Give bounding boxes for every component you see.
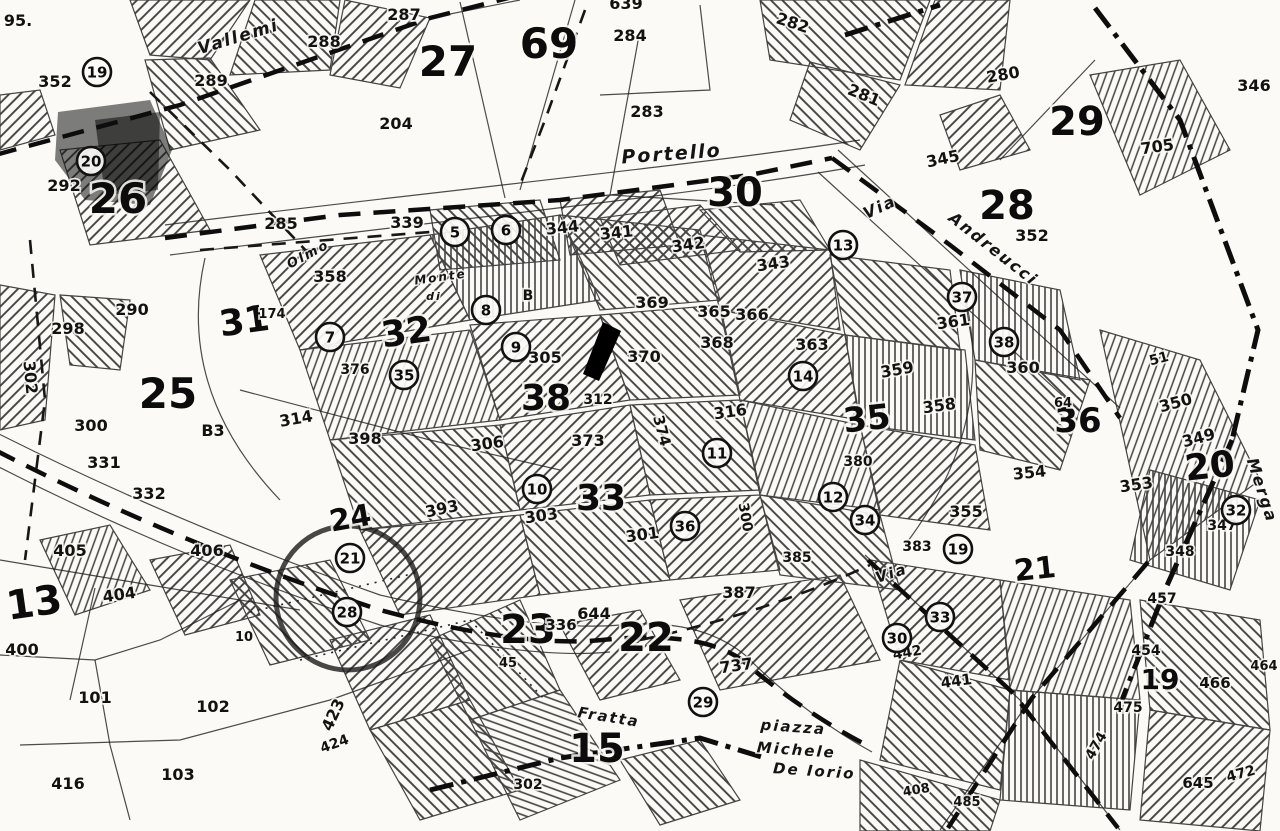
cadastral-map: VallemiPortelloViaAndreucciOlmoMontediMe… bbox=[0, 0, 1280, 831]
parcel-number: 639 bbox=[609, 0, 642, 13]
circled-number: 19 bbox=[83, 58, 111, 86]
zone-number: 30 bbox=[707, 170, 763, 216]
zone-number: 32 bbox=[379, 309, 434, 357]
svg-text:13: 13 bbox=[833, 237, 854, 255]
parcel-number: 645 bbox=[1182, 774, 1213, 792]
parcel-number: 454 bbox=[1131, 643, 1160, 659]
parcel-number: 383 bbox=[902, 539, 931, 555]
zone-number: 29 bbox=[1049, 99, 1105, 145]
svg-text:12: 12 bbox=[823, 489, 844, 507]
parcel-number: 398 bbox=[348, 429, 381, 448]
parcel-number: 64 bbox=[1054, 396, 1072, 411]
parcel-number: 346 bbox=[1237, 76, 1270, 95]
parcel-number: 360 bbox=[1006, 358, 1039, 377]
zone-number: 13 bbox=[3, 576, 65, 629]
parcel-number: B3 bbox=[201, 421, 224, 440]
circled-number: 7 bbox=[316, 323, 344, 351]
cadastral-map-page: VallemiPortelloViaAndreucciOlmoMontediMe… bbox=[0, 0, 1280, 831]
parcel-number: 369 bbox=[635, 293, 668, 312]
parcel-number: 416 bbox=[51, 774, 84, 793]
parcel-number: 475 bbox=[1113, 700, 1142, 716]
parcel-number: 380 bbox=[843, 454, 872, 470]
parcel-number: 332 bbox=[132, 484, 165, 503]
parcel-number: 385 bbox=[782, 550, 811, 566]
svg-text:30: 30 bbox=[887, 630, 908, 648]
zone-number: 69 bbox=[520, 19, 578, 68]
parcel-number: 358 bbox=[313, 267, 346, 286]
parcel-number: 405 bbox=[53, 541, 86, 560]
parcel-number: 174 bbox=[258, 307, 285, 322]
svg-text:35: 35 bbox=[394, 367, 415, 385]
circled-number: 32 bbox=[1222, 496, 1250, 524]
circled-number: 5 bbox=[441, 218, 469, 246]
parcel-number: 298 bbox=[51, 319, 84, 338]
parcel-number: 406 bbox=[190, 541, 223, 560]
circled-number: 13 bbox=[829, 231, 857, 259]
parcel-number: 285 bbox=[264, 214, 297, 233]
svg-text:21: 21 bbox=[340, 550, 361, 568]
svg-text:32: 32 bbox=[1226, 502, 1247, 520]
circled-number: 36 bbox=[671, 512, 699, 540]
svg-text:20: 20 bbox=[81, 153, 102, 171]
zone-number: 21 bbox=[1012, 550, 1057, 589]
svg-text:6: 6 bbox=[501, 222, 511, 240]
parcel-number: 45 bbox=[499, 656, 517, 671]
parcel-number: 103 bbox=[161, 765, 194, 784]
parcel-number: 376 bbox=[340, 362, 369, 378]
parcel-number: 355 bbox=[949, 502, 982, 521]
parcel-number: 344 bbox=[545, 216, 580, 238]
parcel-number: 284 bbox=[613, 26, 646, 45]
circled-number: 28 bbox=[333, 598, 361, 626]
parcel-number: 312 bbox=[583, 392, 612, 408]
svg-text:8: 8 bbox=[481, 302, 491, 320]
parcel-number: 366 bbox=[735, 305, 768, 324]
parcel-number: 283 bbox=[630, 102, 663, 121]
svg-text:7: 7 bbox=[325, 329, 335, 347]
parcel-number: 336 bbox=[545, 616, 576, 634]
circled-number: 8 bbox=[472, 296, 500, 324]
zone-number: 24 bbox=[327, 498, 374, 540]
street-label: di bbox=[426, 290, 442, 303]
svg-text:5: 5 bbox=[450, 224, 460, 242]
circled-number: 19 bbox=[944, 535, 972, 563]
svg-text:29: 29 bbox=[693, 694, 714, 712]
parcel-number: 288 bbox=[307, 32, 340, 51]
parcel-number: 300 bbox=[74, 416, 107, 435]
circled-number: 30 bbox=[883, 624, 911, 652]
circled-number: 10 bbox=[523, 475, 551, 503]
zone-number: 22 bbox=[618, 615, 674, 661]
zone-number: 33 bbox=[576, 478, 626, 519]
parcel-number: 387 bbox=[722, 583, 755, 602]
parcel-number: 204 bbox=[379, 114, 412, 133]
circled-number: 20 bbox=[77, 147, 105, 175]
parcel-number: 95. bbox=[4, 11, 32, 30]
zone-number: 28 bbox=[979, 183, 1035, 229]
parcel-number: 464 bbox=[1250, 659, 1277, 674]
zone-number: 19 bbox=[1141, 663, 1180, 696]
circled-number: 34 bbox=[851, 506, 879, 534]
parcel-number: B bbox=[523, 288, 534, 304]
circled-number: 11 bbox=[703, 439, 731, 467]
parcel-number: 289 bbox=[194, 71, 227, 90]
svg-text:38: 38 bbox=[994, 334, 1015, 352]
svg-text:33: 33 bbox=[930, 609, 951, 627]
circled-number: 6 bbox=[492, 216, 520, 244]
parcel-number: 373 bbox=[571, 431, 604, 450]
parcel-number: 365 bbox=[697, 302, 730, 321]
parcel-number: 10 bbox=[235, 630, 253, 645]
zone-number: 38 bbox=[521, 378, 571, 419]
circled-number: 12 bbox=[819, 483, 847, 511]
svg-text:37: 37 bbox=[952, 289, 973, 307]
parcel-number: 101 bbox=[78, 688, 111, 707]
circled-number: 21 bbox=[336, 544, 364, 572]
parcel-number: 287 bbox=[387, 5, 420, 24]
zone-number: 35 bbox=[841, 397, 892, 442]
parcel-number: 331 bbox=[87, 453, 120, 472]
parcel-number: 305 bbox=[528, 348, 561, 367]
parcel-number: 341 bbox=[599, 221, 634, 243]
parcel-number: 292 bbox=[47, 176, 80, 195]
circled-number: 9 bbox=[502, 333, 530, 361]
parcel-number: 466 bbox=[1199, 674, 1230, 692]
svg-text:11: 11 bbox=[707, 445, 728, 463]
parcel-number: 457 bbox=[1147, 591, 1176, 607]
circled-number: 35 bbox=[390, 361, 418, 389]
parcel-number: 290 bbox=[115, 300, 148, 319]
svg-text:34: 34 bbox=[855, 512, 876, 530]
parcel-number: 302 bbox=[20, 360, 42, 395]
circled-number: 14 bbox=[789, 362, 817, 390]
zone-number: 20 bbox=[1183, 444, 1237, 490]
parcel-number: 363 bbox=[795, 335, 828, 354]
zone-number: 25 bbox=[139, 369, 197, 418]
parcel-number: 354 bbox=[1012, 461, 1047, 483]
circled-number: 33 bbox=[926, 603, 954, 631]
svg-text:19: 19 bbox=[87, 64, 108, 82]
parcel-number: 352 bbox=[38, 72, 71, 91]
parcel-number: 348 bbox=[1165, 544, 1194, 560]
parcel-number: 302 bbox=[513, 777, 542, 793]
parcel-number: 400 bbox=[5, 640, 38, 659]
circled-number: 37 bbox=[948, 283, 976, 311]
parcel-number: 485 bbox=[953, 795, 980, 810]
circled-number: 29 bbox=[689, 688, 717, 716]
zone-number: 27 bbox=[419, 37, 477, 86]
zone-number: 26 bbox=[89, 174, 147, 223]
parcel-number: 370 bbox=[627, 347, 660, 366]
parcel-number: 644 bbox=[577, 604, 610, 623]
svg-text:10: 10 bbox=[527, 481, 548, 499]
parcel-number: 339 bbox=[390, 213, 423, 232]
parcel-number: 352 bbox=[1015, 226, 1048, 245]
svg-text:14: 14 bbox=[793, 368, 814, 386]
svg-text:36: 36 bbox=[675, 518, 696, 536]
svg-text:9: 9 bbox=[511, 339, 521, 357]
parcel-number: 368 bbox=[700, 333, 733, 352]
svg-text:19: 19 bbox=[948, 541, 969, 559]
parcel-number: 102 bbox=[196, 697, 229, 716]
zone-number: 15 bbox=[569, 726, 625, 772]
svg-text:28: 28 bbox=[337, 604, 358, 622]
circled-number: 38 bbox=[990, 328, 1018, 356]
